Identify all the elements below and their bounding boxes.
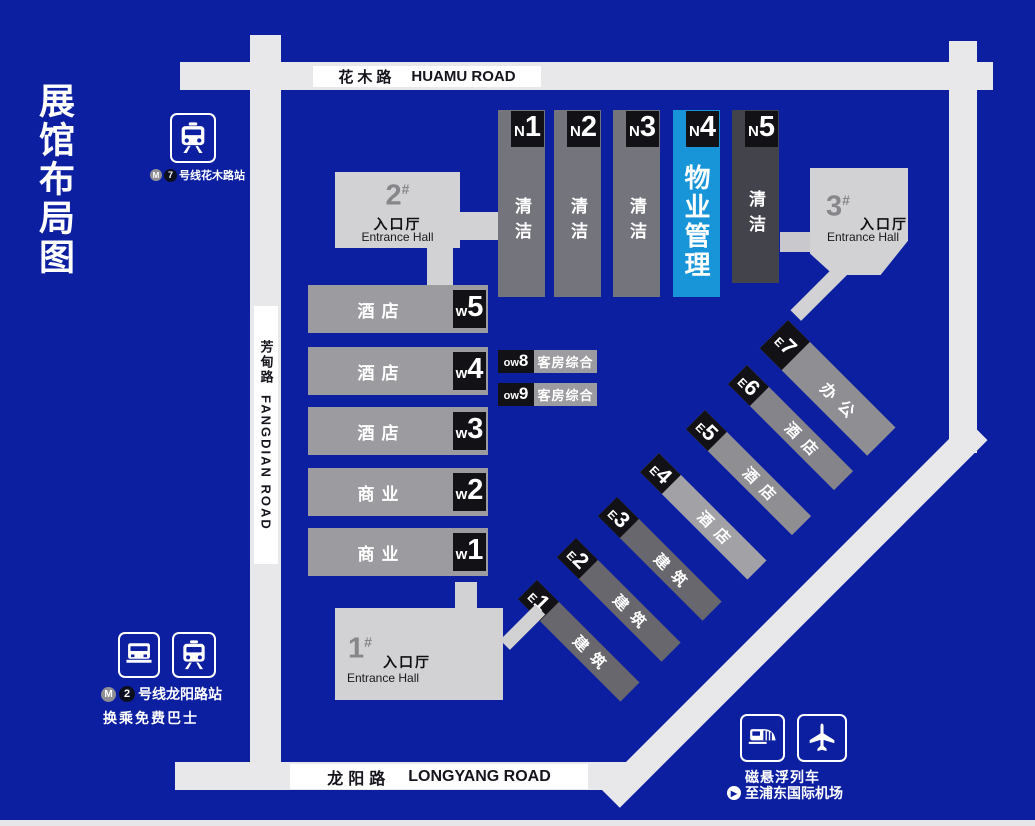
bus-icon [123, 637, 155, 673]
hall-n5-label: N5 [745, 111, 778, 147]
hall-n5-use: 清洁 [732, 146, 779, 283]
play-arrow-icon: ▶ [727, 786, 741, 800]
maglev-destination: ▶ 至浦东国际机场 [727, 783, 843, 803]
exhibition-layout-map: 展馆布局图 M 7 号线花木路站 N1 清洁 N2 清洁 N3 清洁 N4 物业… [0, 0, 1035, 826]
line2-station-label: 号线龙阳路站 [138, 684, 222, 704]
entrance1-label-zh: 入口厅 [383, 652, 431, 672]
hall-w4-label: w4 [453, 352, 486, 390]
entrance2-number: 2# [335, 175, 460, 210]
road-label-fangdian: 芳甸路 FANGDIAN ROAD [254, 306, 278, 564]
airplane-icon-box [797, 714, 847, 762]
hall-n2-use: 清洁 [554, 146, 601, 297]
page-bottom-edge [0, 820, 1035, 826]
hall-n4-use: 物业管理 [673, 146, 720, 297]
entrance1-number: 1# [348, 628, 372, 663]
entrance-hall-1: 1# 入口厅 Entrance Hall [335, 608, 503, 700]
hall-w3-label: w3 [453, 412, 486, 450]
hall-w1-label: w1 [453, 533, 486, 571]
maglev-destination-label: 至浦东国际机场 [745, 783, 843, 803]
bus-icon-box [118, 632, 160, 678]
page-title: 展馆布局图 [28, 82, 80, 277]
hall-n3-label: N3 [626, 111, 659, 147]
line7-badge: 7 [164, 169, 177, 182]
line7-station-label: 号线花木路站 [179, 167, 245, 183]
hall-w3-use: 酒店 [308, 407, 448, 455]
hall-n4-highlighted: N4 物业管理 [673, 110, 720, 297]
hall-w4: 酒店 w4 [308, 347, 488, 395]
road-right-vertical [949, 41, 977, 453]
hall-w2-label: w2 [453, 473, 486, 511]
free-shuttle-note: 换乘免费巴士 [103, 708, 199, 728]
hall-ow8-use: 客房综合 [534, 350, 597, 373]
train-icon [178, 637, 210, 673]
entrance-hall-2: 2# 入口厅 Entrance Hall [335, 172, 460, 248]
metro-logo-icon: M [101, 687, 116, 702]
hall-ow9-label: ow9 [498, 383, 534, 406]
entrance3-connector-west [780, 232, 812, 252]
entrance3-label-en: Entrance Hall [818, 230, 908, 244]
hall-n2: N2 清洁 [554, 110, 601, 297]
hall-n3-use: 清洁 [613, 146, 660, 297]
road-label-huamu: 花木路 HUAMU ROAD [313, 66, 541, 87]
metro-train-icon-box [170, 113, 216, 163]
metro-logo-icon: M [150, 169, 162, 181]
hall-w3: 酒店 w3 [308, 407, 488, 455]
hall-n2-label: N2 [567, 111, 600, 147]
hall-w5: 酒店 w5 [308, 285, 488, 333]
hall-w5-use: 酒店 [308, 285, 448, 333]
road-label-longyang: 龙阳路 LONGYANG ROAD [290, 764, 588, 789]
hall-w2-use: 商业 [308, 468, 448, 516]
line2-badge: 2 [119, 686, 135, 702]
hall-ow9-use: 客房综合 [534, 383, 597, 406]
hall-w1-use: 商业 [308, 528, 448, 576]
maglev-icon-box [740, 714, 785, 762]
hall-n1-label: N1 [511, 111, 544, 147]
maglev-icon [746, 720, 779, 756]
metro-line2-station: M 2 号线龙阳路站 [101, 684, 222, 704]
entrance2-connector-south [427, 248, 453, 286]
hall-n3: N3 清洁 [613, 110, 660, 297]
airplane-icon [805, 720, 839, 756]
hall-w1: 商业 w1 [308, 528, 488, 576]
hall-w4-use: 酒店 [308, 347, 448, 395]
hall-w5-label: w5 [453, 290, 486, 328]
metro-train-icon-box-2 [172, 632, 216, 678]
entrance3-number: 3# [826, 186, 850, 221]
entrance2-label-en: Entrance Hall [335, 230, 460, 244]
entrance1-label-en: Entrance Hall [347, 671, 419, 685]
metro-line7-station: M 7 号线花木路站 [150, 167, 245, 183]
hall-n4-label: N4 [686, 111, 719, 147]
train-icon [176, 119, 210, 157]
hall-ow9: ow9 客房综合 [498, 383, 597, 406]
hall-ow8-label: ow8 [498, 350, 534, 373]
hall-ow8: ow8 客房综合 [498, 350, 597, 373]
entrance-hall-3: 3# 入口厅 Entrance Hall [810, 168, 908, 275]
hall-n1-use: 清洁 [498, 146, 545, 297]
hall-n1: N1 清洁 [498, 110, 545, 297]
entrance2-connector-east [460, 212, 498, 240]
hall-w2: 商业 w2 [308, 468, 488, 516]
entrance1-connector-north [455, 582, 477, 609]
hall-n5: N5 清洁 [732, 110, 779, 283]
road-huamu [180, 62, 993, 90]
entrance1-connector-northeast [500, 605, 545, 650]
